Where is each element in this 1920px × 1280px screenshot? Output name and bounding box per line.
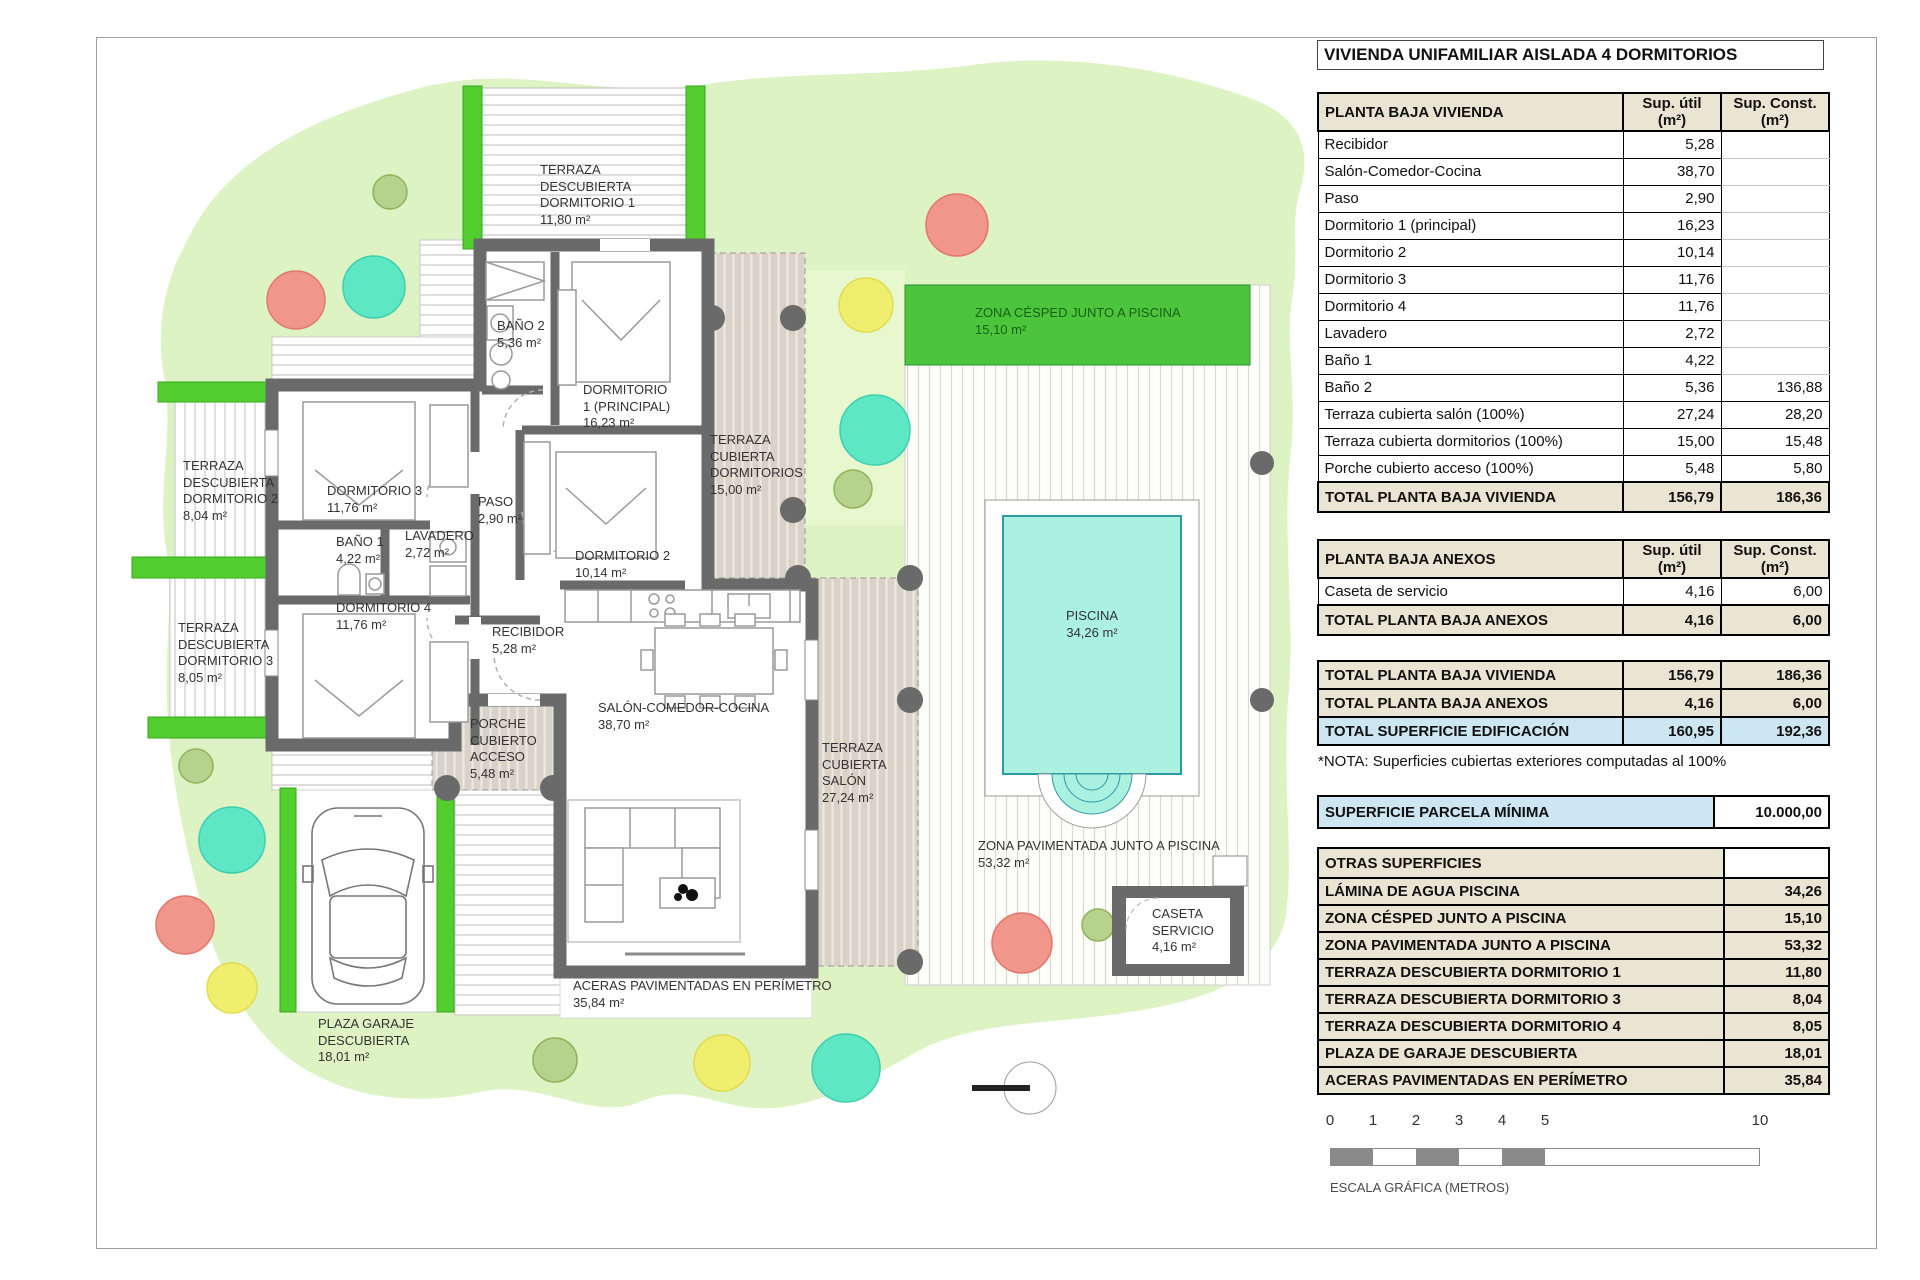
table-total-row: TOTAL PLANTA BAJA ANEXOS4,166,00: [1318, 605, 1829, 635]
label-porche: PORCHE CUBIERTO ACCESO 5,48 m²: [470, 716, 537, 783]
label-terraza-descubierta-dorm3: TERRAZA DESCUBIERTA DORMITORIO 3 8,05 m²: [178, 620, 273, 687]
table-header-row: OTRAS SUPERFICIES: [1318, 848, 1829, 878]
table-row: TERRAZA DESCUBIERTA DORMITORIO 111,80: [1318, 959, 1829, 986]
table-row: TOTAL PLANTA BAJA ANEXOS4,166,00: [1318, 689, 1829, 717]
table-row: Dormitorio 1 (principal)16,23: [1318, 212, 1829, 239]
page: TERRAZA DESCUBIERTA DORMITORIO 1 11,80 m…: [0, 0, 1920, 1280]
table-row: Baño 14,22: [1318, 347, 1829, 374]
bed-dorm2: [524, 442, 656, 558]
scale-tick: 1: [1369, 1112, 1377, 1129]
table-row: Salón-Comedor-Cocina38,70: [1318, 158, 1829, 185]
label-aceras: ACERAS PAVIMENTADAS EN PERÍMETRO 35,84 m…: [573, 978, 832, 1011]
label-terraza-descubierta-dorm1: TERRAZA DESCUBIERTA DORMITORIO 1 11,80 m…: [540, 162, 635, 229]
piscina: [985, 500, 1199, 828]
garage-area: [295, 790, 437, 1012]
table-row: TERRAZA DESCUBIERTA DORMITORIO 38,04: [1318, 986, 1829, 1013]
otras-superficies-table: OTRAS SUPERFICIES LÁMINA DE AGUA PISCINA…: [1317, 847, 1830, 1095]
scale-tick: 2: [1412, 1112, 1420, 1129]
label-salon: SALÓN-COMEDOR-COCINA 38,70 m²: [598, 700, 769, 733]
label-terraza-cubierta-salon: TERRAZA CUBIERTA SALÓN 27,24 m²: [822, 740, 887, 807]
label-terraza-cubierta-dormitorios: TERRAZA CUBIERTA DORMITORIOS 15,00 m²: [710, 432, 803, 499]
label-zona-pavimentada: ZONA PAVIMENTADA JUNTO A PISCINA 53,32 m…: [978, 838, 1220, 871]
table-header-row: PLANTA BAJA ANEXOS Sup. útil(m²) Sup. Co…: [1318, 540, 1829, 578]
scale-bar-segment: [1502, 1148, 1545, 1166]
table-header-row: PLANTA BAJA VIVIENDA Sup. útil(m²) Sup. …: [1318, 93, 1829, 131]
table-row: TOTAL PLANTA BAJA VIVIENDA156,79186,36: [1318, 661, 1829, 689]
label-recibidor: RECIBIDOR 5,28 m²: [492, 624, 564, 657]
table-row: Baño 25,36136,88: [1318, 374, 1829, 401]
label-lavadero: LAVADERO 2,72 m²: [405, 528, 474, 561]
table-row: PLAZA DE GARAJE DESCUBIERTA18,01: [1318, 1040, 1829, 1067]
scale-bar-segment: [1330, 1148, 1373, 1166]
table-row: TERRAZA DESCUBIERTA DORMITORIO 48,05: [1318, 1013, 1829, 1040]
scale-tick: 3: [1455, 1112, 1463, 1129]
scale-tick: 4: [1498, 1112, 1506, 1129]
label-bano2: BAÑO 2 5,36 m²: [497, 318, 545, 351]
label-zona-cesped: ZONA CÉSPED JUNTO A PISCINA 15,10 m²: [975, 305, 1181, 338]
summary-table: TOTAL PLANTA BAJA VIVIENDA156,79186,36 T…: [1317, 660, 1830, 746]
table-row: Terraza cubierta salón (100%)27,2428,20: [1318, 401, 1829, 428]
label-caseta: CASETA SERVICIO 4,16 m²: [1152, 906, 1214, 956]
table-row: Dormitorio 311,76: [1318, 266, 1829, 293]
graphic-scale: 0 1 2 3 4 5 10 ESCALA GRÁFICA (METROS): [1330, 1112, 1780, 1212]
label-terraza-descubierta-dorm2: TERRAZA DESCUBIERTA DORMITORIO 2 8,04 m²: [183, 458, 278, 525]
scale-bar-segment: [1416, 1148, 1459, 1166]
page-title: VIVIENDA UNIFAMILIAR AISLADA 4 DORMITORI…: [1317, 40, 1824, 70]
terraza-cubierta-dormitorios-area: [700, 253, 805, 578]
note-text: *NOTA: Superficies cubiertas exteriores …: [1318, 753, 1726, 770]
scale-tick: 5: [1541, 1112, 1549, 1129]
label-bano1: BAÑO 1 4,22 m²: [336, 534, 384, 567]
aceras-area: [455, 790, 560, 1015]
table-row-highlight: TOTAL SUPERFICIE EDIFICACIÓN160,95192,36: [1318, 717, 1829, 745]
table-row: ZONA PAVIMENTADA JUNTO A PISCINA53,32: [1318, 932, 1829, 959]
table-row: ZONA CÉSPED JUNTO A PISCINA15,10: [1318, 905, 1829, 932]
label-dorm3: DORMITORIO 3 11,76 m²: [327, 483, 422, 516]
table-total-row: TOTAL PLANTA BAJA VIVIENDA156,79186,36: [1318, 482, 1829, 512]
table-row: Paso2,90: [1318, 185, 1829, 212]
table-row: Dormitorio 411,76: [1318, 293, 1829, 320]
label-dorm2: DORMITORIO 2 10,14 m²: [575, 548, 670, 581]
label-dorm1: DORMITORIO 1 (PRINCIPAL) 16,23 m²: [583, 382, 670, 432]
table-row: Lavadero2,72: [1318, 320, 1829, 347]
table-row: Recibidor5,28: [1318, 131, 1829, 158]
scale-tick: 10: [1752, 1112, 1769, 1129]
table-row: Porche cubierto acceso (100%)5,485,80: [1318, 455, 1829, 482]
scale-bar-outline: [1330, 1148, 1760, 1166]
table-row: Caseta de servicio4,166,00: [1318, 578, 1829, 605]
scale-caption: ESCALA GRÁFICA (METROS): [1330, 1180, 1509, 1195]
table-row: Dormitorio 210,14: [1318, 239, 1829, 266]
label-piscina: PISCINA 34,26 m²: [1040, 608, 1144, 641]
survey-marker-icon: [972, 1062, 1056, 1114]
table-row-highlight: SUPERFICIE PARCELA MÍNIMA 10.000,00: [1318, 796, 1829, 828]
label-plaza-garaje: PLAZA GARAJE DESCUBIERTA 18,01 m²: [318, 1016, 414, 1066]
label-paso: PASO 2,90 m²: [478, 494, 522, 527]
anexos-table: PLANTA BAJA ANEXOS Sup. útil(m²) Sup. Co…: [1317, 539, 1830, 636]
label-dorm4: DORMITORIO 4 11,76 m²: [336, 600, 431, 633]
table-row: Terraza cubierta dormitorios (100%)15,00…: [1318, 428, 1829, 455]
scale-tick: 0: [1326, 1112, 1334, 1129]
parcela-table: SUPERFICIE PARCELA MÍNIMA 10.000,00: [1317, 795, 1830, 829]
dining-table: [641, 614, 787, 708]
table-row: ACERAS PAVIMENTADAS EN PERÍMETRO35,84: [1318, 1067, 1829, 1094]
table-row: LÁMINA DE AGUA PISCINA34,26: [1318, 878, 1829, 905]
bed-dorm1: [558, 262, 670, 385]
planta-baja-table: PLANTA BAJA VIVIENDA Sup. útil(m²) Sup. …: [1317, 92, 1830, 513]
sofa-set: [568, 800, 740, 942]
